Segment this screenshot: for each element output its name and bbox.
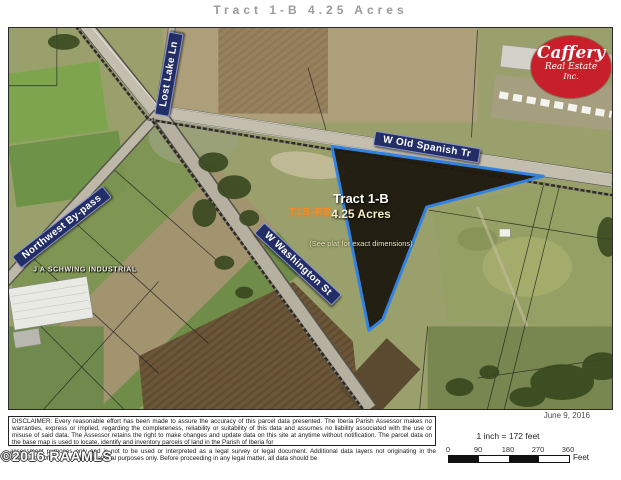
tract-name: Tract 1-B xyxy=(301,191,421,206)
aerial-map: Lost Lake Ln W Old Spanish Tr Northwest … xyxy=(8,27,613,410)
tract-note: (See plat for exact dimensions) xyxy=(301,239,421,248)
logo-name: Caffery xyxy=(531,45,611,62)
mls-copyright-watermark: ©2016 RAAMLS xyxy=(1,448,112,464)
scale-bar-segment xyxy=(479,456,509,462)
map-date: June 9, 2016 xyxy=(500,411,590,420)
photo-watermark: T1B-RB xyxy=(289,207,332,218)
field-north-plow-rows xyxy=(218,28,328,114)
area-label-ja-schwing: J A SCHWING INDUSTRIAL xyxy=(33,267,137,274)
small-shed xyxy=(499,229,510,237)
scale-unit-label: Feet xyxy=(573,453,589,462)
scale-tick-270: 270 xyxy=(532,445,545,454)
disclaimer-box: DISCLAIMER: Every reasonable effort has … xyxy=(8,416,436,446)
page-title: Tract 1-B 4.25 Acres xyxy=(0,3,621,17)
field-east-light-patch xyxy=(482,237,572,297)
logo-line3: Inc. xyxy=(531,72,611,81)
listing-map-page: Tract 1-B 4.25 Acres xyxy=(0,0,621,480)
caffery-real-estate-logo: Caffery Real Estate Inc. xyxy=(531,36,611,98)
scale-ratio-label: 1 inch = 172 feet xyxy=(448,431,568,441)
scale-bar xyxy=(448,455,570,463)
scale-tick-180: 180 xyxy=(502,445,515,454)
scale-tick-90: 90 xyxy=(474,445,482,454)
scale-bar-segment xyxy=(539,456,569,462)
scale-bar-segment xyxy=(449,456,479,462)
scale-bar-segment xyxy=(509,456,539,462)
logo-line2: Real Estate xyxy=(531,62,611,72)
tract-label-block: Tract 1-B 4.25 Acres (See plat for exact… xyxy=(301,191,421,248)
scale-tick-0: 0 xyxy=(446,445,450,454)
